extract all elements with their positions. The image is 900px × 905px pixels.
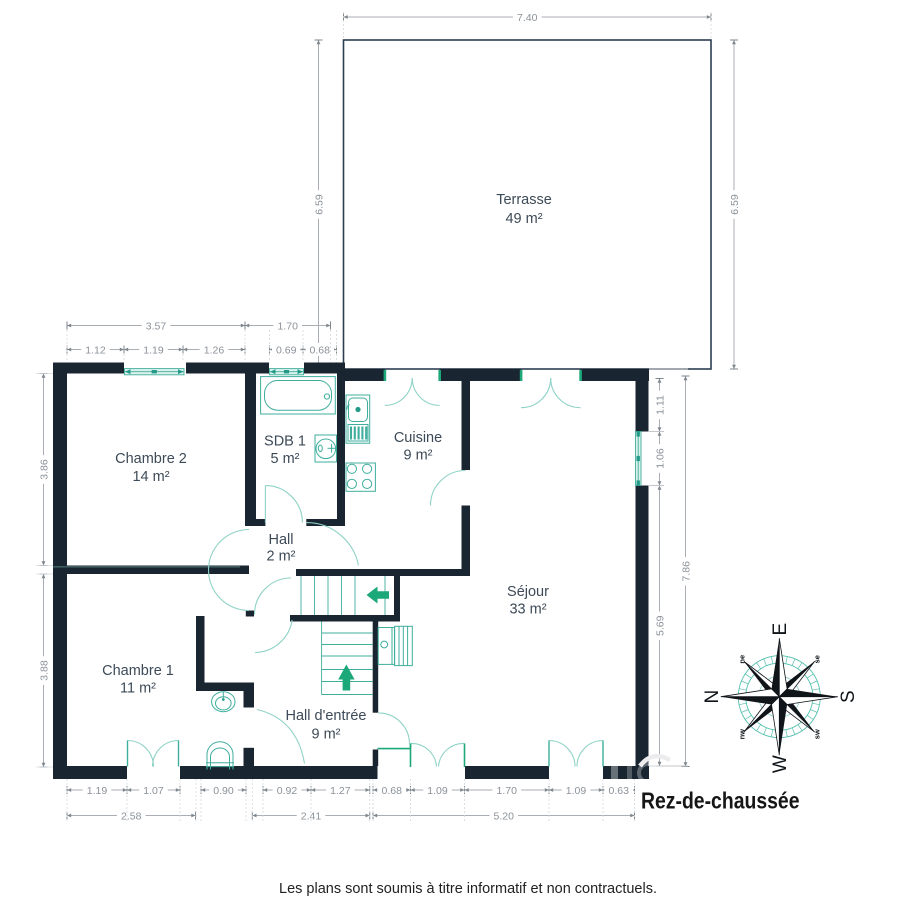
svg-text:6.59: 6.59 bbox=[313, 194, 325, 215]
svg-text:1.19: 1.19 bbox=[143, 344, 164, 356]
svg-text:Rez-de-chaussée: Rez-de-chaussée bbox=[641, 788, 800, 814]
svg-text:1.07: 1.07 bbox=[143, 785, 164, 797]
svg-text:Hall: Hall bbox=[269, 532, 294, 548]
svg-text:3.88: 3.88 bbox=[38, 660, 50, 681]
svg-text:0.68: 0.68 bbox=[310, 344, 331, 356]
svg-text:Cuisine: Cuisine bbox=[394, 430, 442, 446]
svg-text:9 m²: 9 m² bbox=[404, 448, 433, 464]
svg-text:sw: sw bbox=[812, 729, 821, 739]
svg-text:1.09: 1.09 bbox=[566, 785, 587, 797]
svg-text:7.40: 7.40 bbox=[517, 12, 538, 24]
svg-text:2.58: 2.58 bbox=[121, 810, 142, 822]
svg-text:7.86: 7.86 bbox=[680, 561, 692, 582]
svg-text:9 m²: 9 m² bbox=[312, 727, 341, 743]
svg-text:3.86: 3.86 bbox=[38, 459, 50, 480]
svg-text:1.11: 1.11 bbox=[654, 395, 666, 415]
svg-text:nw: nw bbox=[737, 729, 746, 740]
svg-text:N: N bbox=[702, 690, 723, 704]
svg-text:0.92: 0.92 bbox=[277, 785, 298, 797]
svg-text:Séjour: Séjour bbox=[507, 584, 549, 600]
svg-text:5.20: 5.20 bbox=[494, 810, 515, 822]
svg-text:Chambre 2: Chambre 2 bbox=[115, 451, 187, 467]
svg-text:1.19: 1.19 bbox=[87, 785, 108, 797]
svg-text:1.06: 1.06 bbox=[654, 448, 666, 469]
svg-text:Terrasse: Terrasse bbox=[496, 192, 552, 208]
svg-text:5 m²: 5 m² bbox=[271, 451, 300, 467]
svg-text:se: se bbox=[812, 655, 821, 663]
svg-text:33 m²: 33 m² bbox=[509, 602, 546, 618]
svg-text:14 m²: 14 m² bbox=[132, 469, 169, 485]
svg-text:W: W bbox=[770, 755, 791, 773]
svg-text:6.59: 6.59 bbox=[729, 194, 741, 215]
svg-text:Hall d'entrée: Hall d'entrée bbox=[286, 708, 367, 724]
svg-text:2 m²: 2 m² bbox=[267, 549, 296, 565]
svg-text:0.68: 0.68 bbox=[382, 785, 403, 797]
svg-text:1.09: 1.09 bbox=[427, 785, 448, 797]
svg-text:0.63: 0.63 bbox=[609, 785, 630, 797]
svg-text:1.70: 1.70 bbox=[497, 785, 518, 797]
svg-text:SDB 1: SDB 1 bbox=[264, 434, 306, 450]
svg-text:S: S bbox=[838, 690, 859, 703]
svg-text:ne: ne bbox=[737, 655, 746, 664]
svg-text:1.27: 1.27 bbox=[330, 785, 351, 797]
svg-text:1.70: 1.70 bbox=[278, 320, 299, 332]
svg-text:0.69: 0.69 bbox=[276, 344, 297, 356]
svg-text:3.57: 3.57 bbox=[146, 320, 167, 332]
svg-text:1.12: 1.12 bbox=[85, 344, 106, 356]
svg-text:49 m²: 49 m² bbox=[505, 211, 542, 227]
svg-text:0.90: 0.90 bbox=[213, 785, 234, 797]
svg-text:E: E bbox=[770, 623, 791, 636]
svg-text:11 m²: 11 m² bbox=[120, 681, 156, 697]
svg-text:5.69: 5.69 bbox=[654, 615, 666, 636]
svg-text:1.26: 1.26 bbox=[204, 344, 225, 356]
svg-text:Chambre 1: Chambre 1 bbox=[102, 663, 174, 679]
svg-text:Les plans sont soumis à titre: Les plans sont soumis à titre informatif… bbox=[279, 881, 657, 897]
